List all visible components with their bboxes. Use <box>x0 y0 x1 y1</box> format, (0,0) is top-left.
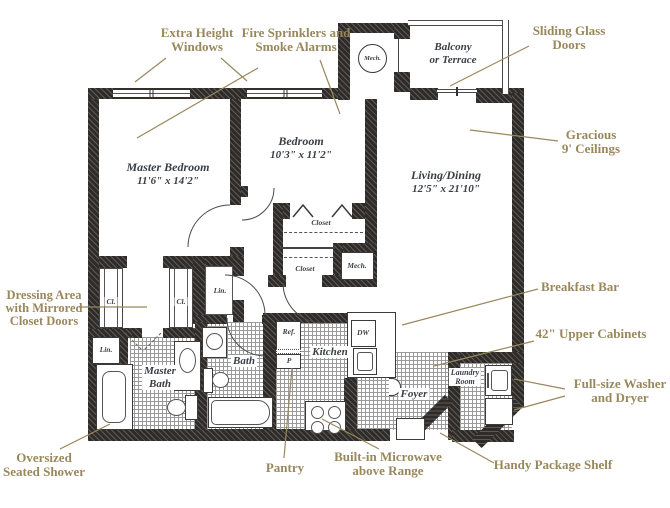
leader-extra-height-right <box>221 58 247 81</box>
laundry-label: Laundry Room <box>449 368 481 386</box>
wall-linen-right-bottom <box>233 300 244 322</box>
laundry-line1: Laundry <box>449 368 481 377</box>
room-dims: 11'6" x 14'2" <box>126 174 209 188</box>
floor-plan: Mech. Master Bedroom 11'6" x 14'2" Bedro… <box>0 0 670 508</box>
cl-left-label: Cl. <box>105 298 118 306</box>
room-dims: 12'5" x 21'10" <box>411 182 481 196</box>
balcony-label: Balcony or Terrace <box>430 41 477 66</box>
masterbath-toilet-tank <box>185 395 198 420</box>
wall-dressing-mid <box>193 256 205 322</box>
shower-bench <box>102 371 126 423</box>
closet-shelf-dashed <box>284 232 363 233</box>
annotation-dressing-area: Dressing Area with Mirrored Closet Doors <box>6 289 83 328</box>
mech-lower-label: Mech. <box>347 262 366 270</box>
wall-dressing-top-a <box>99 256 127 268</box>
closet-divider-line <box>280 247 335 249</box>
bifold-left <box>293 205 313 217</box>
annotation-pantry: Pantry <box>266 461 304 475</box>
living-dining-label: Living/Dining 12'5" x 21'10" <box>411 168 481 196</box>
room-name: Bedroom <box>270 134 332 148</box>
sliding-door-tick <box>456 87 458 96</box>
lin-hall-label: Lin. <box>214 287 227 295</box>
balcony-line1: Balcony <box>430 41 477 54</box>
room-dims: 10'3" x 11'2" <box>270 148 332 162</box>
annotation-extra-height-windows: Extra Height Windows <box>161 26 234 53</box>
bathtub-inner <box>211 400 270 425</box>
bath-sink-basin <box>206 333 223 350</box>
mech-closet-upper-circle: Mech. <box>358 44 387 73</box>
master-bath-label: Master Bath <box>142 365 178 390</box>
washer-door <box>491 370 508 391</box>
ref-label: Ref. <box>283 328 296 336</box>
wall-bedrooms <box>230 99 241 205</box>
wall-linen2-top <box>88 329 132 337</box>
bath-label: Bath <box>231 355 257 367</box>
wall-top-a <box>88 88 113 99</box>
dw-label: DW <box>357 329 369 337</box>
wall-mech-right-bottom <box>394 72 410 92</box>
closet-shelf-dashed <box>284 257 333 258</box>
leader-fire-sprinklers-right <box>320 60 340 114</box>
masterbath-sink-basin <box>179 348 196 373</box>
burner <box>328 406 341 419</box>
cl-right-label: Cl. <box>175 298 188 306</box>
wall-top-b <box>190 88 247 99</box>
lin-bath-label: Lin. <box>100 346 113 354</box>
wall-closet-left <box>273 203 283 285</box>
annotation-washer-dryer: Full-size Washer and Dryer <box>574 377 667 404</box>
foyer-label: Foyer <box>399 388 430 400</box>
room-name: Master Bedroom <box>126 160 209 174</box>
wall-laundry-left <box>448 352 460 440</box>
master-bath-line1: Master <box>142 365 178 378</box>
master-bath-line2: Bath <box>142 378 178 391</box>
door-arc-master-bedroom <box>188 205 230 247</box>
annotation-breakfast-bar: Breakfast Bar <box>541 280 619 294</box>
washer-control-bar <box>487 373 489 388</box>
dryer <box>485 398 513 425</box>
balcony-line2: or Terrace <box>430 54 477 67</box>
bedroom-label: Bedroom 10'3" x 11'2" <box>270 134 332 162</box>
annotation-handy-package-shelf: Handy Package Shelf <box>494 458 612 472</box>
laundry-line2: Room <box>449 377 481 386</box>
annotation-upper-cabinets: 42" Upper Cabinets <box>536 327 647 341</box>
wall-closet-bottom-a <box>268 275 286 287</box>
kitchen-name: Kitchen <box>310 346 349 358</box>
burner <box>311 421 324 434</box>
window-master-bedroom <box>113 88 190 99</box>
pantry-p-label: P <box>287 357 292 365</box>
room-name: Living/Dining <box>411 168 481 182</box>
annotation-sliding-glass-doors: Sliding Glass Doors <box>533 24 606 51</box>
wall-linen-right-top <box>233 256 244 276</box>
wall-bedroom-bottom-stub <box>241 186 248 197</box>
closet-upper-label: Closet <box>311 219 330 227</box>
foyer-name: Foyer <box>399 388 430 400</box>
kitchen-sink-basin <box>357 352 373 371</box>
burner <box>311 406 324 419</box>
leader-extra-height-left <box>135 58 166 82</box>
wall-slider-a <box>410 88 438 100</box>
bath-toilet-bowl <box>212 372 229 388</box>
mech-upper-label: Mech. <box>364 55 381 63</box>
wall-closet-block-right <box>352 203 365 219</box>
bath-name: Bath <box>231 355 257 367</box>
burner <box>328 421 341 434</box>
annotation-built-in-microwave: Built-in Microwave above Range <box>334 450 442 477</box>
mech-door-line <box>398 39 401 72</box>
balcony-rail-top <box>408 20 506 26</box>
kitchen-label: Kitchen <box>310 346 349 358</box>
master-bedroom-label: Master Bedroom 11'6" x 14'2" <box>126 160 209 188</box>
annotation-fire-sprinklers: Fire Sprinklers and Smoke Alarms <box>242 26 351 53</box>
bifold-chevrons <box>293 205 352 217</box>
masterbath-toilet-bowl <box>167 399 186 416</box>
annotation-gracious-ceilings: Gracious 9' Ceilings <box>562 128 620 155</box>
window-bedroom <box>247 88 322 99</box>
closet-lower-label: Closet <box>295 265 314 273</box>
balcony-rail-right <box>502 20 509 94</box>
annotation-oversized-shower: Oversized Seated Shower <box>3 451 85 478</box>
package-shelf <box>396 418 425 440</box>
bifold-right <box>332 205 352 217</box>
